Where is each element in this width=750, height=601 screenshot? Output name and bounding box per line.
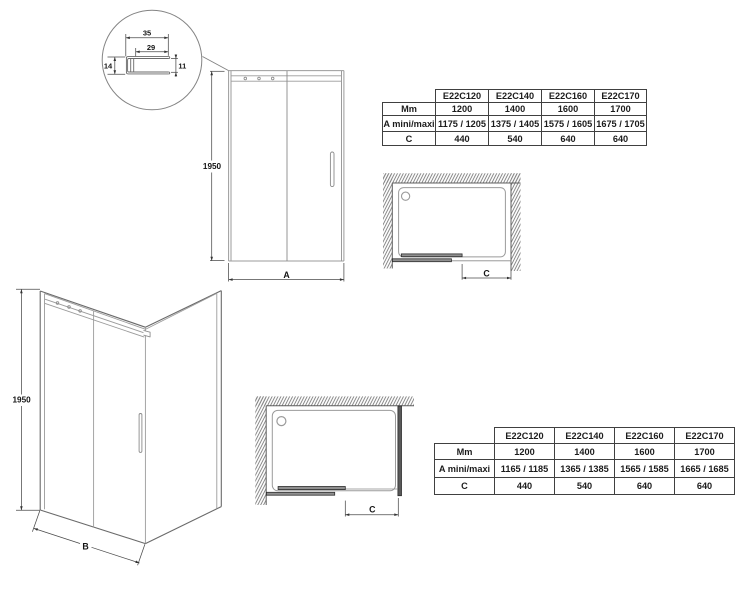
svg-text:35: 35 (143, 29, 151, 38)
svg-text:B: B (82, 542, 88, 552)
svg-text:C: C (483, 268, 490, 278)
svg-text:1950: 1950 (12, 396, 31, 405)
svg-text:C: C (369, 504, 376, 514)
svg-text:1950: 1950 (203, 162, 222, 171)
svg-text:11: 11 (178, 61, 186, 70)
svg-text:A: A (283, 270, 290, 280)
svg-text:14: 14 (104, 62, 113, 71)
svg-text:29: 29 (147, 43, 155, 52)
